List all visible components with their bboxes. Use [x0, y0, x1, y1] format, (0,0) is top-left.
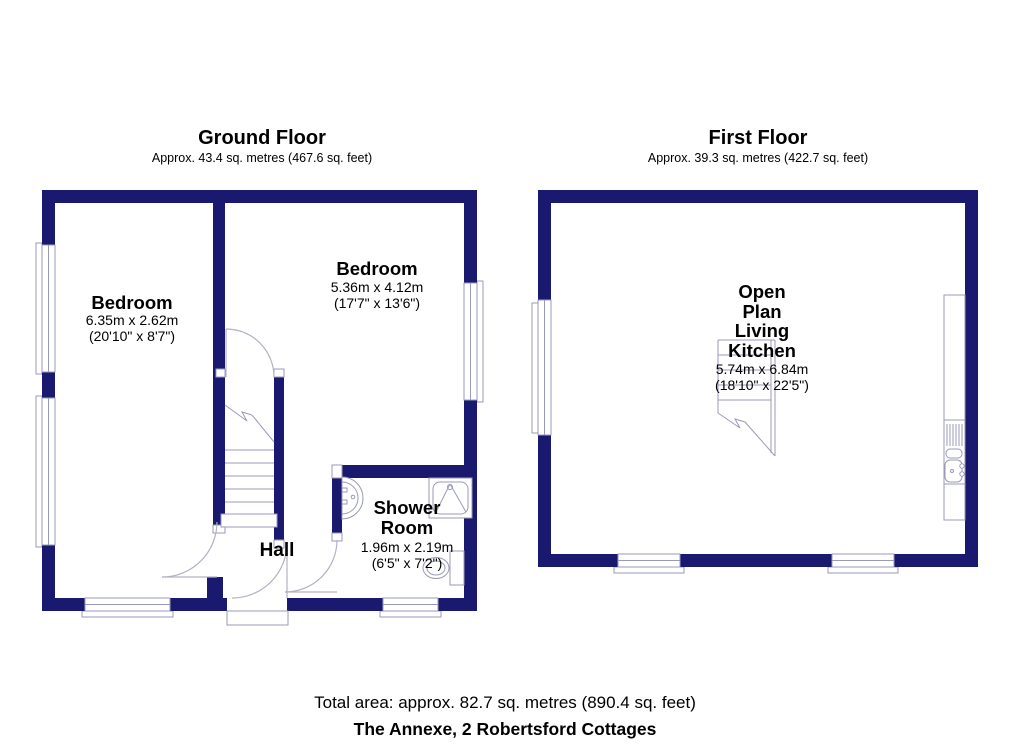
front-door-step	[227, 611, 288, 625]
ff-window-sills	[532, 303, 898, 573]
ff-kitchen-counter	[944, 295, 965, 520]
shower-room-dims-imperial: (6'5" x 7'2")	[372, 556, 443, 570]
bedroom1-name: Bedroom	[91, 294, 172, 313]
open-plan-dims-metric: 5.74m x 6.84m	[716, 362, 809, 376]
shower-room-dims-metric: 1.96m x 2.19m	[361, 540, 454, 554]
shower-room-name-line2: Room	[381, 519, 433, 538]
sink-fixture	[342, 477, 363, 519]
total-area-text: Total area: approx. 82.7 sq. metres (890…	[314, 694, 696, 711]
hall-name: Hall	[260, 541, 295, 560]
bedroom2-name: Bedroom	[336, 260, 417, 279]
bedroom1-dims-metric: 6.35m x 2.62m	[86, 313, 179, 327]
floorplan-drawing	[0, 0, 1024, 745]
open-plan-name-line2: Plan	[742, 303, 781, 322]
first-floor-title: First Floor	[709, 128, 808, 148]
shower-room-name-line1: Shower	[374, 499, 441, 518]
open-plan-name-line1: Open	[738, 283, 785, 302]
open-plan-dims-imperial: (18'10" x 22'5")	[715, 378, 809, 392]
property-name: The Annexe, 2 Robertsford Cottages	[354, 721, 657, 739]
first-floor-area: Approx. 39.3 sq. metres (422.7 sq. feet)	[648, 152, 868, 165]
ff-windows	[538, 300, 894, 567]
open-plan-name-line3: Living	[735, 322, 789, 341]
ground-floor-title: Ground Floor	[198, 128, 326, 148]
ground-floor-area: Approx. 43.4 sq. metres (467.6 sq. feet)	[152, 152, 372, 165]
gf-staircase	[221, 405, 277, 527]
open-plan-name-line4: Kitchen	[728, 342, 796, 361]
floorplan-page: Ground Floor Approx. 43.4 sq. metres (46…	[0, 0, 1024, 745]
bedroom2-dims-metric: 5.36m x 4.12m	[331, 280, 424, 294]
bedroom2-dims-imperial: (17'7" x 13'6")	[334, 296, 420, 310]
bedroom1-dims-imperial: (20'10" x 8'7")	[89, 329, 175, 343]
bedroom2-door	[226, 329, 274, 377]
bedroom1-door	[162, 522, 217, 577]
